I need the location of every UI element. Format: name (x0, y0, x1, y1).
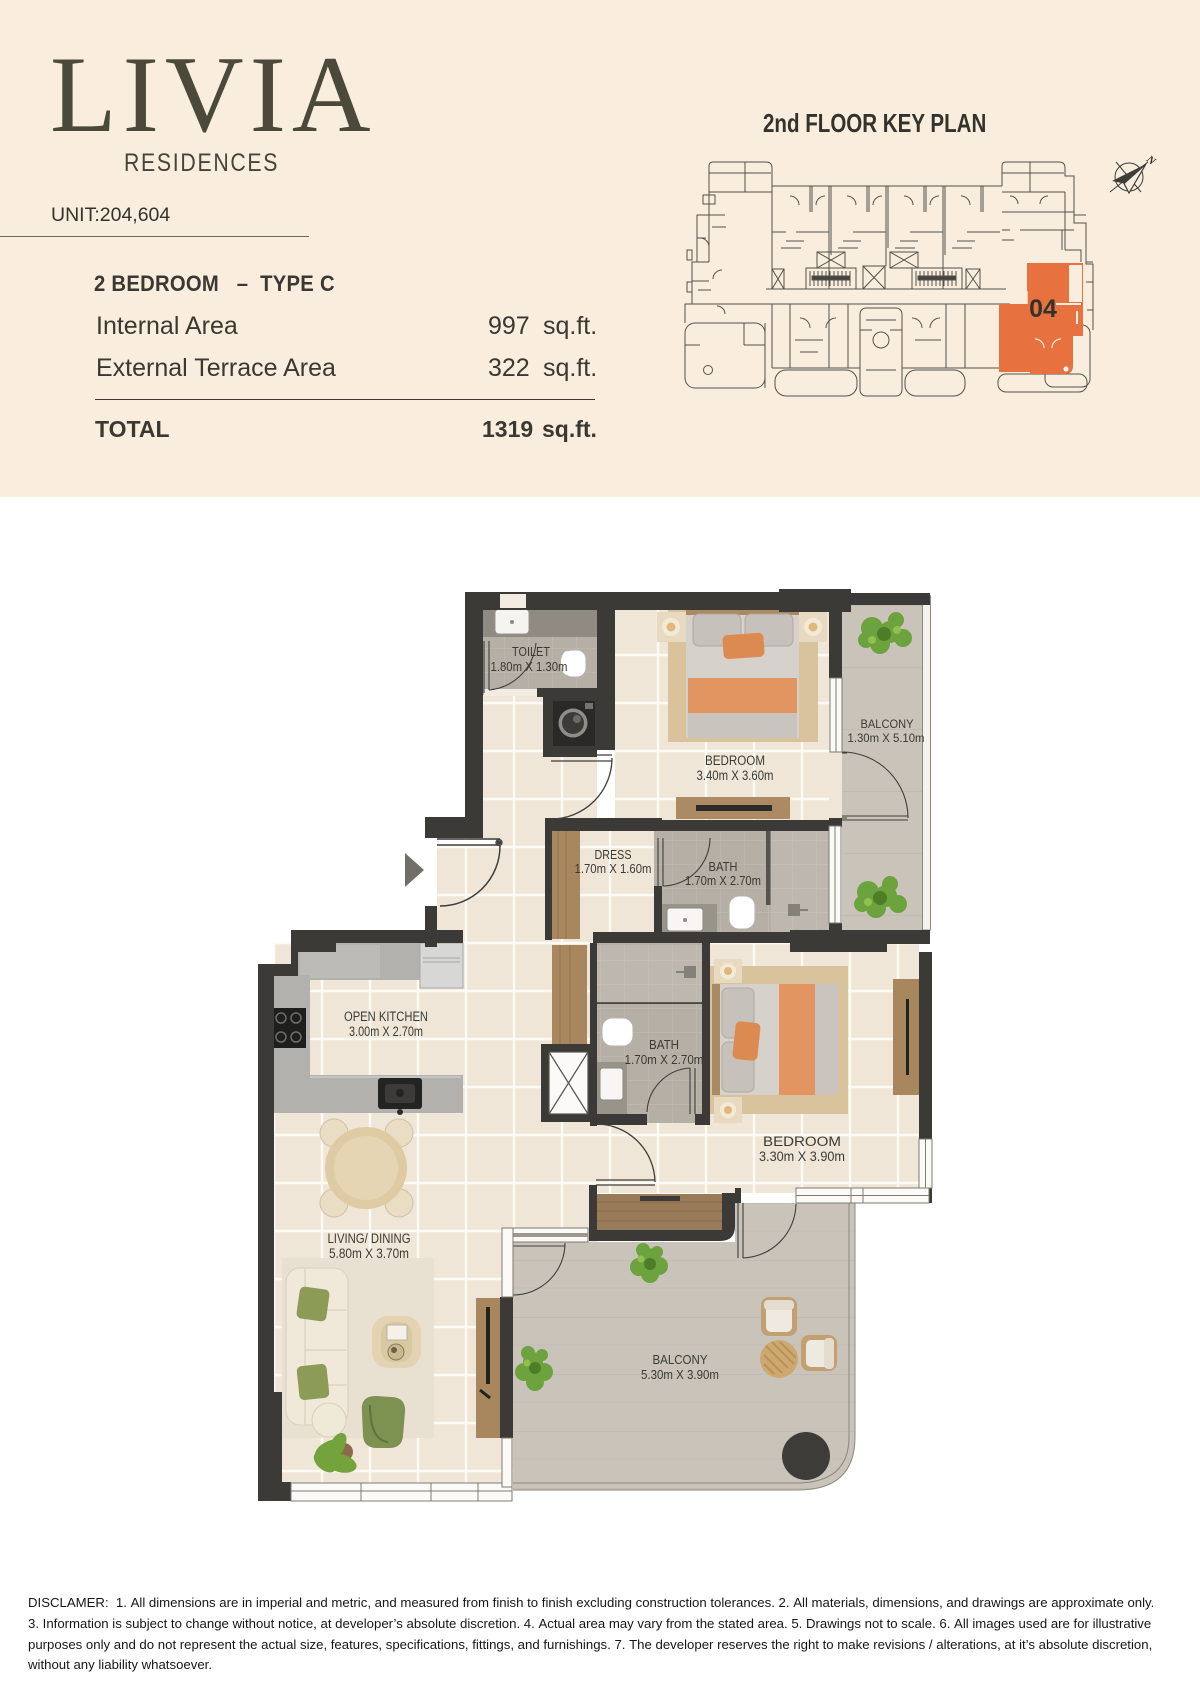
svg-text:1.70m X 2.70m: 1.70m X 2.70m (625, 1052, 704, 1067)
svg-text:1.30m X 5.10m: 1.30m X 5.10m (848, 733, 925, 745)
svg-text:3.40m X 3.60m: 3.40m X 3.60m (697, 768, 774, 783)
svg-text:3.00m X 2.70m: 3.00m X 2.70m (349, 1024, 423, 1039)
svg-text:BATH: BATH (709, 859, 738, 874)
svg-text:BEDROOM: BEDROOM (705, 753, 765, 768)
svg-text:5.80m X 3.70m: 5.80m X 3.70m (329, 1246, 409, 1261)
svg-text:BATH: BATH (649, 1037, 679, 1052)
svg-text:BEDROOM: BEDROOM (763, 1134, 841, 1149)
svg-text:1.80m X 1.30m: 1.80m X 1.30m (491, 659, 568, 674)
svg-text:5.30m X 3.90m: 5.30m X 3.90m (641, 1367, 719, 1382)
svg-text:TOILET: TOILET (512, 644, 550, 659)
svg-text:BALCONY: BALCONY (861, 719, 914, 731)
svg-text:DRESS: DRESS (595, 848, 632, 862)
svg-text:1.70m X 2.70m: 1.70m X 2.70m (685, 873, 761, 888)
svg-text:1.70m X 1.60m: 1.70m X 1.60m (575, 862, 652, 876)
svg-text:LIVING/ DINING: LIVING/ DINING (328, 1231, 411, 1246)
svg-text:3.30m X 3.90m: 3.30m X 3.90m (759, 1149, 845, 1164)
svg-text:BALCONY: BALCONY (653, 1352, 708, 1367)
svg-text:04: 04 (1029, 295, 1057, 323)
svg-text:OPEN KITCHEN: OPEN KITCHEN (344, 1009, 428, 1024)
